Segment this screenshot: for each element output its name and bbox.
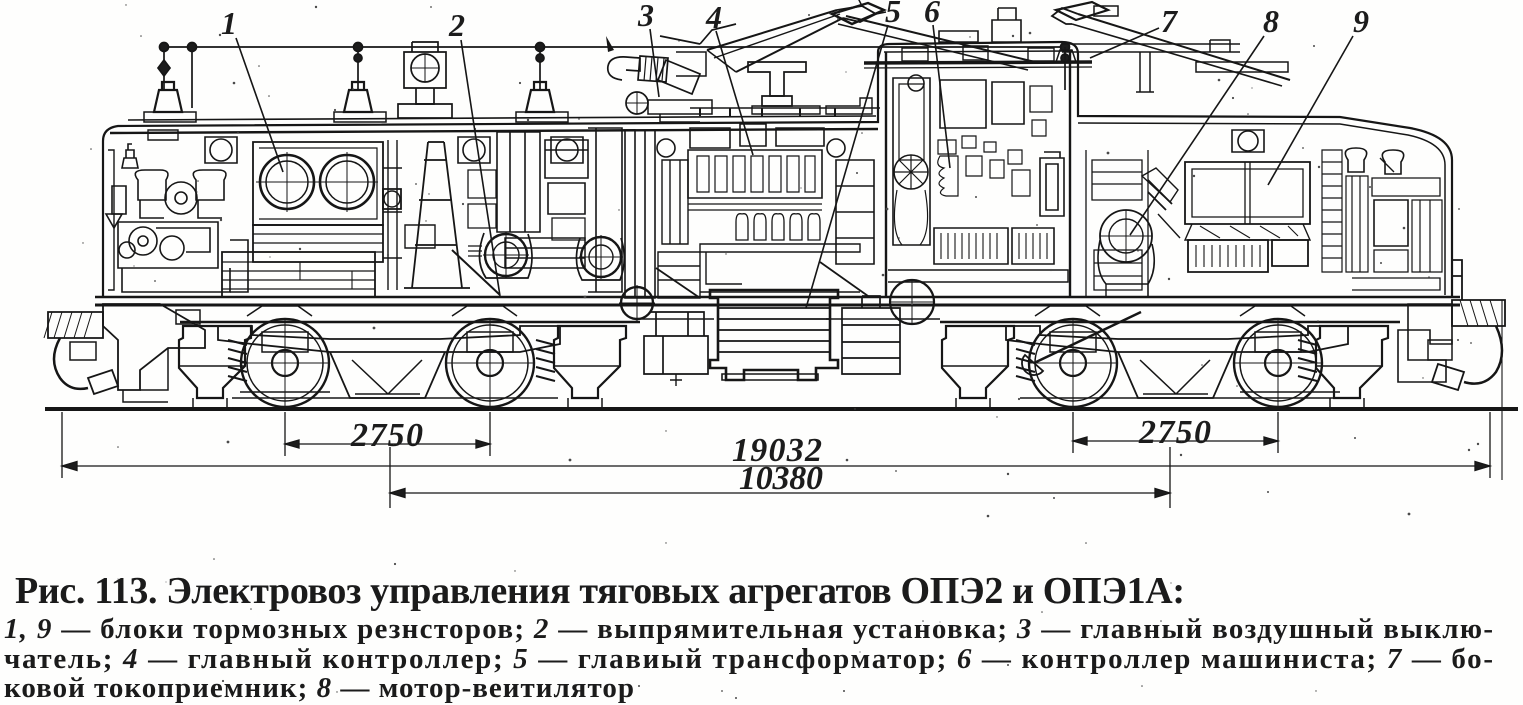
svg-text:чатель; 4 — главный контроллер: чатель; 4 — главный контроллер; 5 — глав… — [4, 643, 1493, 675]
svg-text:4: 4 — [705, 0, 722, 35]
svg-text:2: 2 — [448, 7, 465, 43]
svg-text:6: 6 — [924, 0, 940, 29]
svg-text:10380: 10380 — [739, 460, 823, 497]
svg-text:1, 9 — блоки тормозных резнсто: 1, 9 — блоки тормозных резнсторов; 2 — в… — [4, 613, 1493, 645]
svg-text:2750: 2750 — [1138, 414, 1211, 451]
svg-text:9: 9 — [1353, 3, 1369, 39]
svg-text:1: 1 — [221, 5, 237, 41]
svg-text:3: 3 — [637, 0, 654, 33]
svg-text:ковой токоприемник; 8 — мотор-: ковой токоприемник; 8 — мотор-веитилятор — [4, 672, 634, 704]
svg-text:8: 8 — [1263, 3, 1279, 39]
svg-text:5: 5 — [885, 0, 901, 29]
svg-text:2750: 2750 — [350, 417, 423, 454]
svg-text:7: 7 — [1161, 3, 1179, 39]
svg-text:Рис. 113. Электровоз управлени: Рис. 113. Электровоз управления тяговых … — [15, 570, 1185, 612]
